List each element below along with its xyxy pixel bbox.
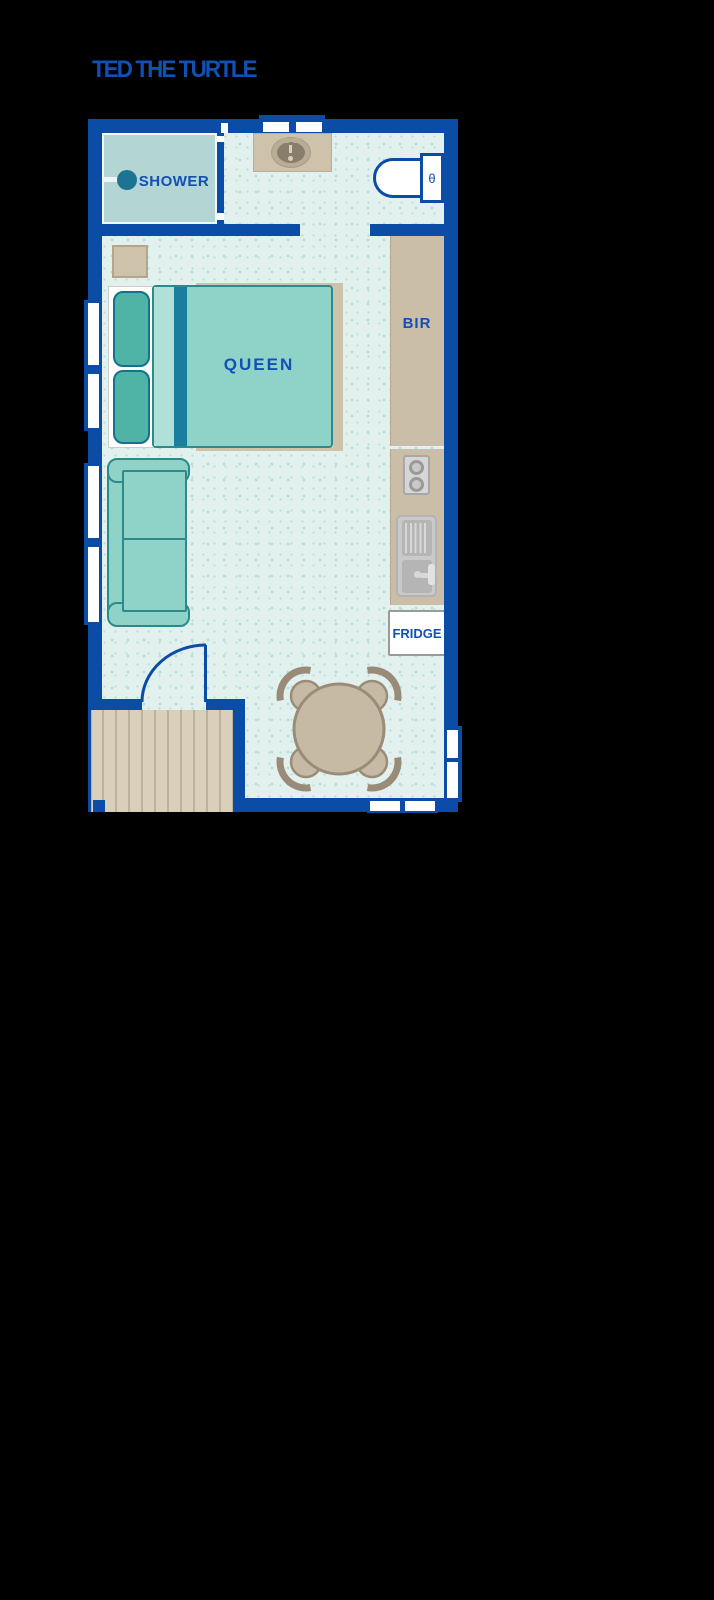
shower-label: SHOWER xyxy=(128,174,220,189)
page-title: TED THE TURTLE xyxy=(92,56,256,84)
floor-plan: SHOWER QUEEN BIR FRIDGE θ xyxy=(88,119,458,812)
door-swing-arc xyxy=(142,645,206,702)
dining-set-and-door-arc xyxy=(88,119,458,812)
bir-label: BIR xyxy=(390,316,444,331)
queen-label: QUEEN xyxy=(189,356,329,373)
fridge-label: FRIDGE xyxy=(388,627,446,640)
toilet-button-label: θ xyxy=(420,172,444,185)
dining-table xyxy=(294,684,384,774)
